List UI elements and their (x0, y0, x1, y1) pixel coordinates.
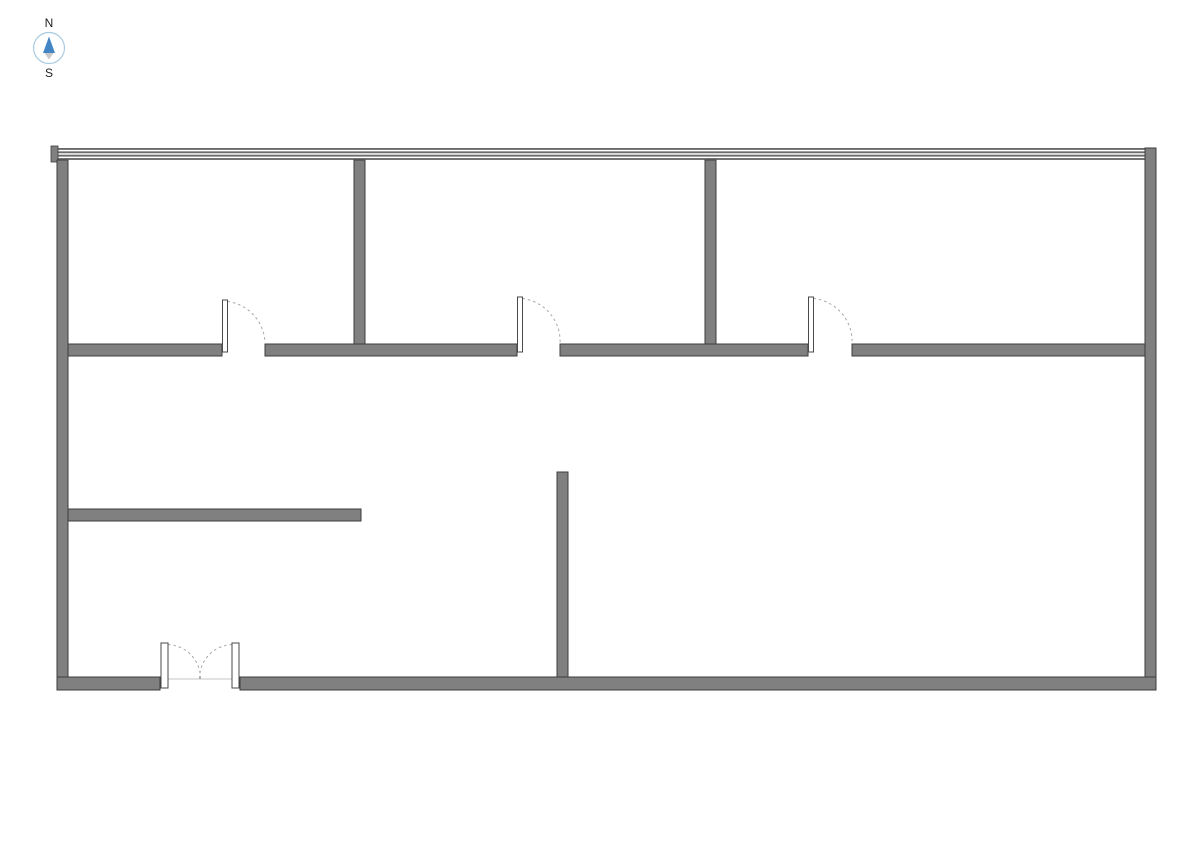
wall-lower-partition-vertical (557, 472, 568, 677)
door-room1-swing-arc (228, 302, 266, 345)
wall-exterior-right (1145, 148, 1156, 690)
window-strip-line (57, 151, 1145, 153)
wall-corridor-segment-4 (852, 344, 1145, 356)
window-strip-line (57, 158, 1145, 160)
floorplan-canvas (0, 0, 1191, 841)
door-room2-leaf (518, 297, 523, 352)
wall-partition-room2-room3 (705, 160, 716, 344)
wall-corridor-segment-3 (560, 344, 808, 356)
wall-exterior-bottom-west (57, 677, 160, 690)
window-strip-line (57, 155, 1145, 157)
window-strip-line (57, 148, 1145, 150)
door-room1-leaf (223, 300, 228, 352)
door-room3-swing-arc (814, 299, 853, 345)
wall-corridor-segment-2 (265, 344, 517, 356)
wall-corridor-segment-1 (68, 344, 222, 356)
entrance-double-door-right-leaf (232, 643, 239, 688)
wall-exterior-bottom-east (240, 677, 1156, 690)
entrance-double-door-left-leaf (161, 643, 168, 688)
door-room3-leaf (809, 297, 814, 352)
entrance-double-door-threshold (169, 679, 232, 680)
wall-partition-room1-room2 (354, 160, 365, 344)
entrance-double-door-right-swing-arc (199, 645, 232, 680)
entrance-double-door-left-swing-arc (168, 645, 201, 680)
wall-lower-partition-horizontal (68, 509, 361, 521)
floorplan-page: N S (0, 0, 1191, 841)
wall-exterior-left (57, 160, 68, 690)
door-room2-swing-arc (523, 299, 561, 345)
